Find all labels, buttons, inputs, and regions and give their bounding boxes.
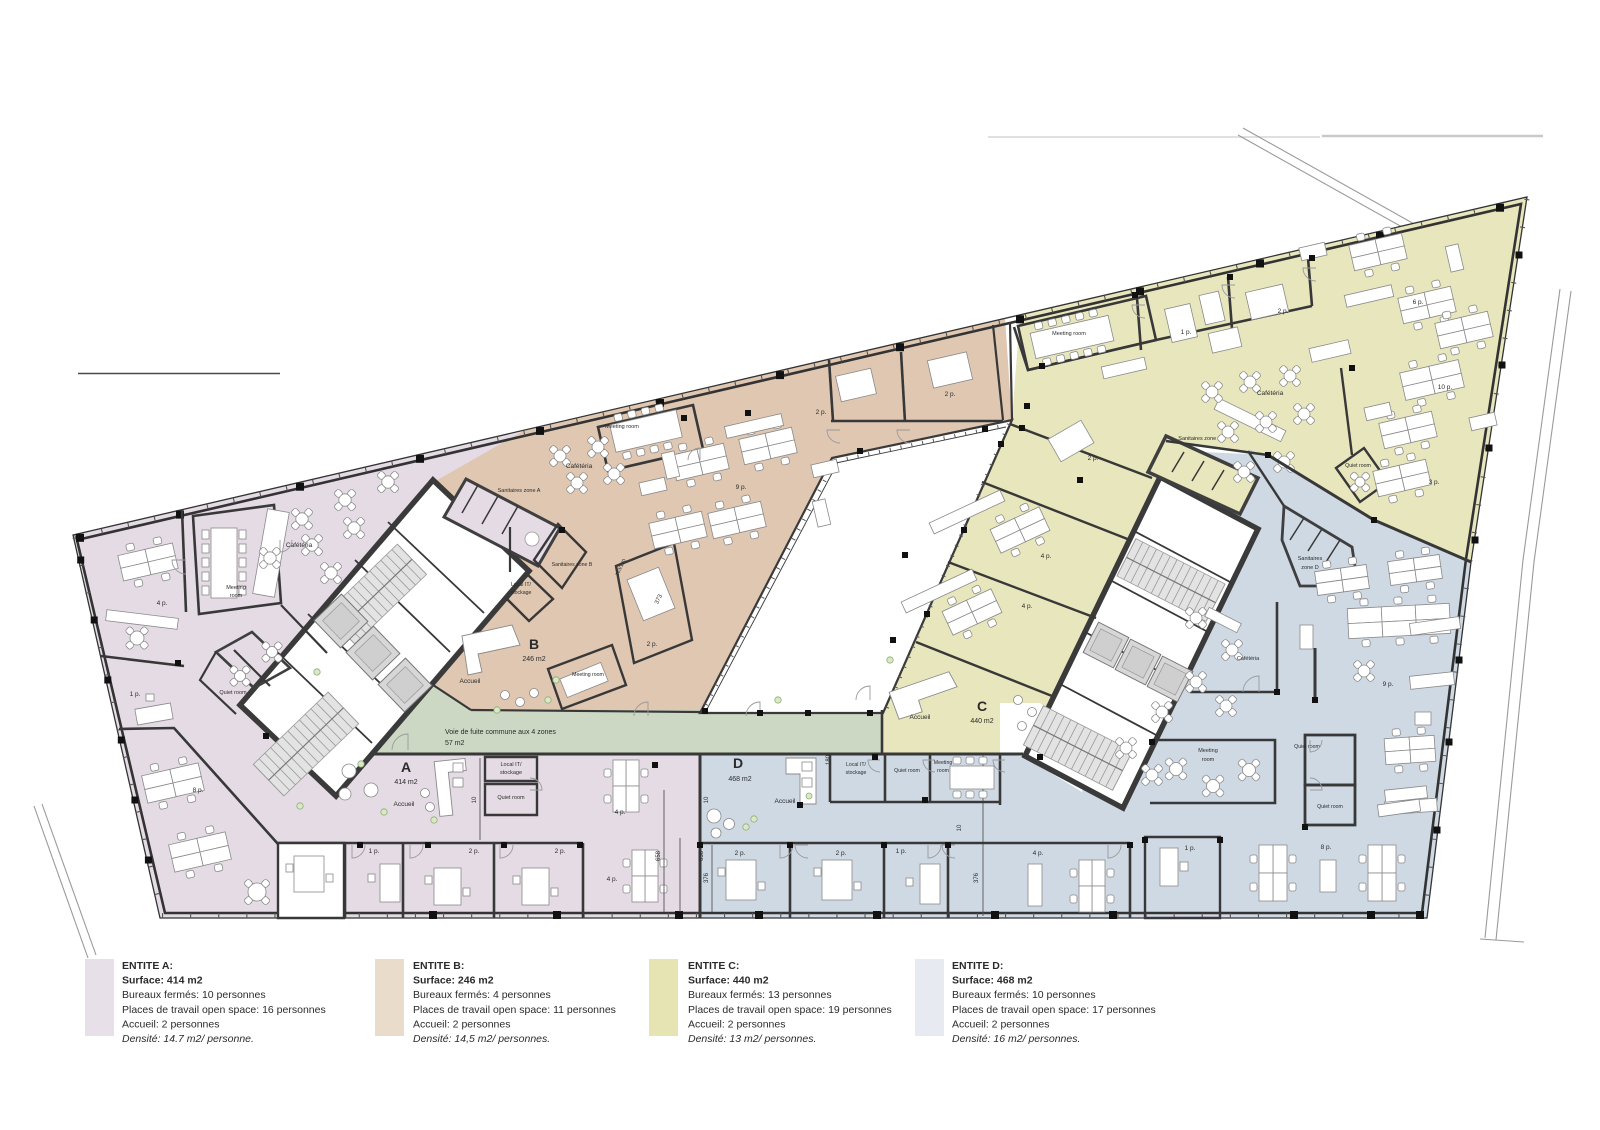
svg-text:Bureaux fermés: 10 personnes: Bureaux fermés: 10 personnes	[952, 989, 1096, 1001]
svg-text:6 p.: 6 p.	[1413, 299, 1424, 306]
svg-text:Meeting: Meeting	[934, 760, 953, 766]
svg-text:D: D	[733, 755, 743, 771]
svg-text:2 p.: 2 p.	[555, 848, 566, 855]
svg-text:2 p.: 2 p.	[1088, 455, 1099, 462]
svg-text:57 m2: 57 m2	[445, 740, 465, 747]
svg-text:1 p.: 1 p.	[1185, 845, 1196, 852]
svg-text:1 p.: 1 p.	[369, 848, 380, 855]
svg-text:Places de travail open space:: Places de travail open space: 17 personn…	[952, 1004, 1156, 1016]
svg-text:Densité: 14.7 m2/ personne.: Densité: 14.7 m2/ personne.	[122, 1033, 254, 1045]
svg-text:Sanitaires zone C: Sanitaires zone C	[1178, 436, 1221, 442]
svg-text:Sanitaires zone A: Sanitaires zone A	[498, 488, 541, 494]
svg-text:room: room	[937, 768, 949, 774]
svg-text:Accueil: Accueil	[775, 798, 797, 805]
svg-text:Quiet room: Quiet room	[894, 768, 920, 774]
svg-text:10: 10	[704, 796, 710, 803]
svg-text:Accueil: 2 personnes: Accueil: 2 personnes	[413, 1018, 510, 1030]
svg-text:4 p.: 4 p.	[1041, 553, 1052, 560]
svg-text:2 p.: 2 p.	[647, 641, 658, 648]
svg-text:4 p.: 4 p.	[607, 876, 618, 883]
svg-text:Cafétéria: Cafétéria	[1257, 390, 1284, 397]
svg-text:2 p.: 2 p.	[1278, 308, 1289, 315]
svg-text:Places de travail open space:: Places de travail open space: 19 personn…	[688, 1004, 892, 1016]
svg-text:4 p.: 4 p.	[157, 600, 168, 607]
svg-text:Accueil: Accueil	[910, 714, 932, 721]
svg-text:9 p.: 9 p.	[736, 484, 747, 491]
svg-text:Quiet room: Quiet room	[1345, 463, 1371, 469]
svg-text:room: room	[1202, 757, 1215, 763]
svg-text:B: B	[529, 636, 539, 652]
svg-text:Accueil: 2 personnes: Accueil: 2 personnes	[688, 1018, 785, 1030]
svg-text:Surface: 468 m2: Surface: 468 m2	[952, 975, 1033, 987]
svg-text:246 m2: 246 m2	[522, 656, 545, 663]
svg-text:1 p.: 1 p.	[130, 691, 141, 698]
svg-text:Local IT/: Local IT/	[846, 762, 866, 768]
svg-text:Cafétéria: Cafétéria	[566, 463, 593, 470]
svg-text:4 p.: 4 p.	[1033, 850, 1044, 857]
svg-text:10 p.: 10 p.	[1438, 384, 1453, 391]
svg-text:Bureaux fermés: 10 personnes: Bureaux fermés: 10 personnes	[122, 989, 266, 1001]
svg-text:376: 376	[974, 872, 980, 883]
svg-text:414 m2: 414 m2	[394, 779, 417, 786]
svg-text:ENTITE C:: ENTITE C:	[688, 960, 739, 972]
svg-text:3 p.: 3 p.	[1429, 479, 1440, 486]
svg-text:A: A	[401, 759, 411, 775]
svg-text:468 m2: 468 m2	[728, 776, 751, 783]
svg-text:4 p.: 4 p.	[615, 809, 626, 816]
svg-text:Meeting: Meeting	[226, 585, 246, 591]
svg-text:zone D: zone D	[1301, 565, 1318, 571]
svg-text:C: C	[977, 698, 987, 714]
svg-text:Places de travail open space:: Places de travail open space: 11 personn…	[413, 1004, 616, 1016]
svg-text:10: 10	[472, 796, 478, 803]
svg-text:Quiet room: Quiet room	[219, 690, 247, 696]
svg-text:10: 10	[957, 824, 963, 831]
svg-text:Surface: 414 m2: Surface: 414 m2	[122, 975, 203, 987]
svg-text:Local IT/: Local IT/	[511, 582, 531, 588]
svg-text:Sanitaires: Sanitaires	[1298, 556, 1323, 562]
svg-text:2 p.: 2 p.	[469, 848, 480, 855]
svg-text:Quiet room: Quiet room	[1317, 804, 1343, 810]
svg-text:Densité: 14,5 m2/ personnes.: Densité: 14,5 m2/ personnes.	[413, 1033, 550, 1045]
svg-text:Meeting room: Meeting room	[605, 424, 639, 430]
svg-text:9 p.: 9 p.	[1383, 681, 1394, 688]
svg-text:8 p.: 8 p.	[1321, 844, 1332, 851]
svg-text:2 p.: 2 p.	[816, 409, 827, 416]
svg-text:Surface: 246 m2: Surface: 246 m2	[413, 975, 494, 987]
svg-text:Quiet room: Quiet room	[497, 795, 525, 801]
svg-text:Local IT/: Local IT/	[500, 762, 522, 768]
svg-text:Quiet room: Quiet room	[1294, 744, 1320, 750]
svg-text:Sanitaires zone B: Sanitaires zone B	[552, 562, 593, 568]
svg-text:440 m2: 440 m2	[970, 718, 993, 725]
svg-text:Meeting: Meeting	[1198, 748, 1218, 754]
svg-text:Voie de fuite commune aux 4 zo: Voie de fuite commune aux 4 zones	[445, 729, 556, 736]
svg-text:8 p.: 8 p.	[193, 787, 204, 794]
svg-text:658: 658	[656, 850, 662, 861]
svg-text:ENTITE A:: ENTITE A:	[122, 960, 173, 972]
svg-text:Accueil: 2 personnes: Accueil: 2 personnes	[122, 1018, 219, 1030]
svg-text:Accueil: 2 personnes: Accueil: 2 personnes	[952, 1018, 1049, 1030]
svg-text:Surface: 440 m2: Surface: 440 m2	[688, 975, 769, 987]
svg-text:Bureaux fermés: 4 personnes: Bureaux fermés: 4 personnes	[413, 989, 551, 1001]
svg-text:Densité: 13 m2/ personnes.: Densité: 13 m2/ personnes.	[688, 1033, 816, 1045]
svg-text:Bureaux fermés: 13 personnes: Bureaux fermés: 13 personnes	[688, 989, 832, 1001]
svg-text:376: 376	[704, 872, 710, 883]
svg-text:2 p.: 2 p.	[945, 391, 956, 398]
svg-text:Cafétéria: Cafétéria	[286, 542, 313, 549]
svg-text:Meeting room: Meeting room	[572, 672, 604, 678]
svg-text:1 p.: 1 p.	[896, 848, 907, 855]
svg-text:room: room	[230, 593, 243, 599]
svg-text:stockage: stockage	[846, 770, 867, 776]
svg-text:Places de travail open space:: Places de travail open space: 16 personn…	[122, 1004, 326, 1016]
svg-text:ENTITE D:: ENTITE D:	[952, 960, 1003, 972]
svg-text:1 p.: 1 p.	[1181, 329, 1192, 336]
svg-text:ENTITE B:: ENTITE B:	[413, 960, 464, 972]
svg-text:2 p.: 2 p.	[735, 850, 746, 857]
svg-text:Accueil: Accueil	[460, 678, 482, 685]
svg-text:stockage: stockage	[500, 770, 522, 776]
svg-text:2 p.: 2 p.	[836, 850, 847, 857]
svg-text:Accueil: Accueil	[394, 801, 416, 808]
svg-text:4 p.: 4 p.	[1022, 603, 1033, 610]
svg-text:Meeting room: Meeting room	[1052, 331, 1086, 337]
svg-text:Cafétéria: Cafétéria	[1237, 656, 1260, 662]
svg-text:658: 658	[699, 850, 705, 861]
svg-text:Densité: 16 m2/ personnes.: Densité: 16 m2/ personnes.	[952, 1033, 1080, 1045]
svg-text:stockage: stockage	[511, 590, 532, 596]
